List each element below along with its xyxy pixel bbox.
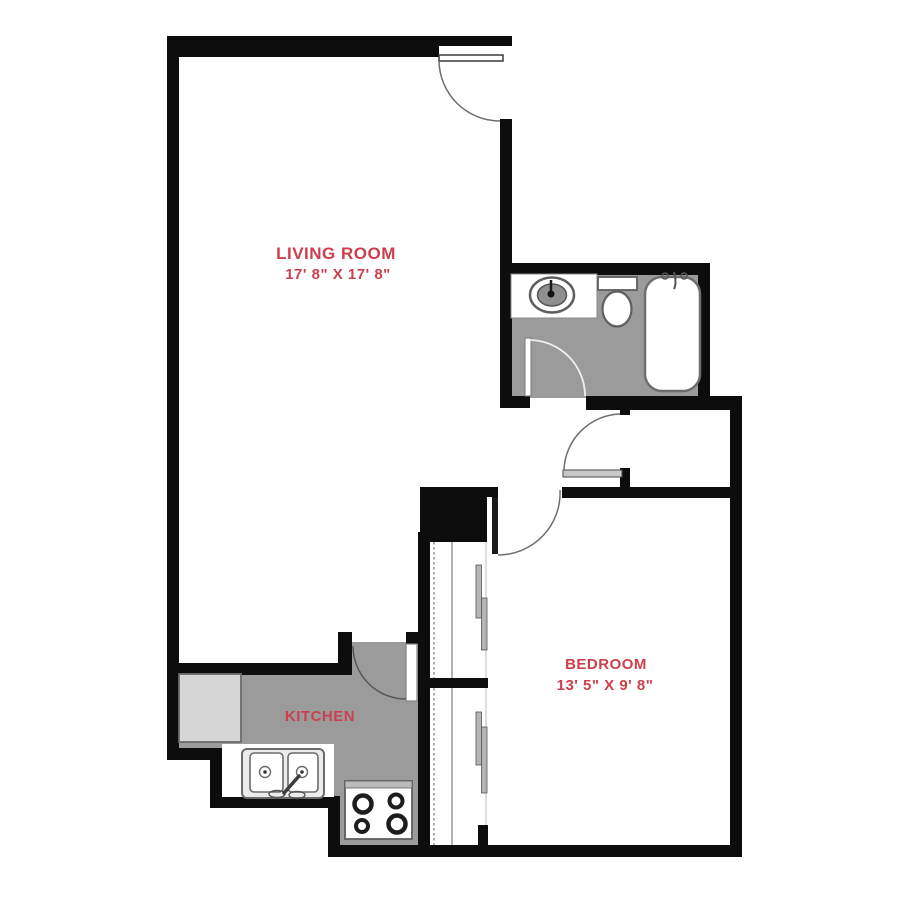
wall-right: [730, 398, 742, 857]
closet-door-panel: [563, 470, 622, 477]
wall-bedroom-top-mid: [562, 487, 622, 498]
bedroom-door-swing-arc: [498, 490, 560, 555]
wall-closet-stub-top: [620, 398, 630, 415]
wall-kitchen-door-jamb-left: [338, 632, 352, 675]
walkin-closet-door: [563, 414, 622, 477]
living-room-label: LIVING ROOM: [276, 244, 396, 263]
wall-left: [167, 36, 179, 665]
entry-door: [439, 55, 503, 121]
bathroom-door-panel: [525, 338, 531, 396]
bedroom-closets: [434, 542, 487, 845]
wall-corner-block: [420, 487, 487, 542]
wall-entry-header: [438, 36, 512, 46]
wall-left-lower: [167, 663, 179, 760]
wall-bathroom-top: [500, 263, 710, 275]
wall-closet-divider: [428, 678, 488, 688]
floor-plan: LIVING ROOM 17' 8" X 17' 8" KITCHEN BEDR…: [0, 0, 900, 900]
kitchen-label: KITCHEN: [285, 708, 355, 725]
wall-bathroom-bottom-right: [586, 396, 742, 410]
refrigerator-icon: [179, 674, 241, 742]
living-room-dimensions: 17' 8" X 17' 8": [285, 266, 391, 283]
wall-bedroom-top-right: [620, 487, 730, 498]
wall-bottom: [328, 845, 742, 857]
kitchen-sink-icon: [222, 744, 334, 799]
wall-kitchen-right: [418, 532, 430, 847]
bathroom-sink-icon: [530, 278, 574, 313]
entry-door-swing-arc: [439, 61, 500, 121]
kitchen-door-panel: [406, 644, 417, 701]
wall-kitchen-door-jamb-right: [406, 632, 420, 644]
bedroom-label: BEDROOM: [565, 656, 647, 673]
entry-door-panel: [439, 55, 503, 61]
bedroom-door-panel: [492, 498, 498, 554]
stove-icon: [345, 781, 412, 839]
bedroom-door: [487, 490, 560, 555]
bedroom-door-gap: [487, 497, 492, 544]
wall-bathroom-bottom-left: [500, 396, 530, 408]
wall-top: [167, 36, 439, 57]
bathtub-icon: [645, 272, 700, 391]
closet-door-swing-arc: [564, 414, 620, 470]
wall-closet-bottom-stub: [478, 825, 488, 847]
bedroom-dimensions: 13' 5" X 9' 8": [557, 677, 654, 694]
floor-plan-canvas: LIVING ROOM 17' 8" X 17' 8" KITCHEN BEDR…: [0, 0, 900, 900]
